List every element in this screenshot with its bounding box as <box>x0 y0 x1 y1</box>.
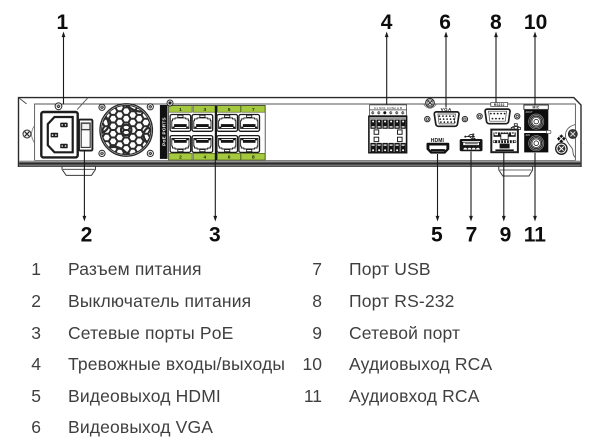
svg-text:2: 2 <box>81 224 93 247</box>
svg-text:MIC: MIC <box>533 106 540 110</box>
svg-text:4: 4 <box>381 11 393 34</box>
svg-text:10: 10 <box>524 11 547 34</box>
svg-text:7: 7 <box>252 107 255 113</box>
svg-text:2: 2 <box>179 155 182 161</box>
svg-text:5: 5 <box>431 224 443 247</box>
svg-text:7: 7 <box>466 224 478 247</box>
svg-text:1: 1 <box>56 11 68 34</box>
svg-text:8: 8 <box>252 155 255 161</box>
svg-text:6: 6 <box>439 11 451 34</box>
svg-text:8: 8 <box>490 11 502 34</box>
svg-text:C1 NO1 CON2 A B: C1 NO1 CON2 A B <box>374 106 402 110</box>
svg-text:3: 3 <box>209 224 221 247</box>
svg-text:AIN: AIN <box>526 134 530 137</box>
svg-text:PoE PORTS: PoE PORTS <box>161 117 166 146</box>
svg-text:3: 3 <box>203 107 206 113</box>
svg-text:1: 1 <box>179 107 182 113</box>
svg-text:AOUT: AOUT <box>526 111 533 114</box>
svg-text:RS232: RS232 <box>494 103 505 107</box>
svg-text:9: 9 <box>500 224 512 247</box>
svg-text:5: 5 <box>228 107 231 113</box>
svg-text:4: 4 <box>203 155 206 161</box>
svg-text:6: 6 <box>228 155 231 161</box>
svg-text:11: 11 <box>524 224 547 247</box>
